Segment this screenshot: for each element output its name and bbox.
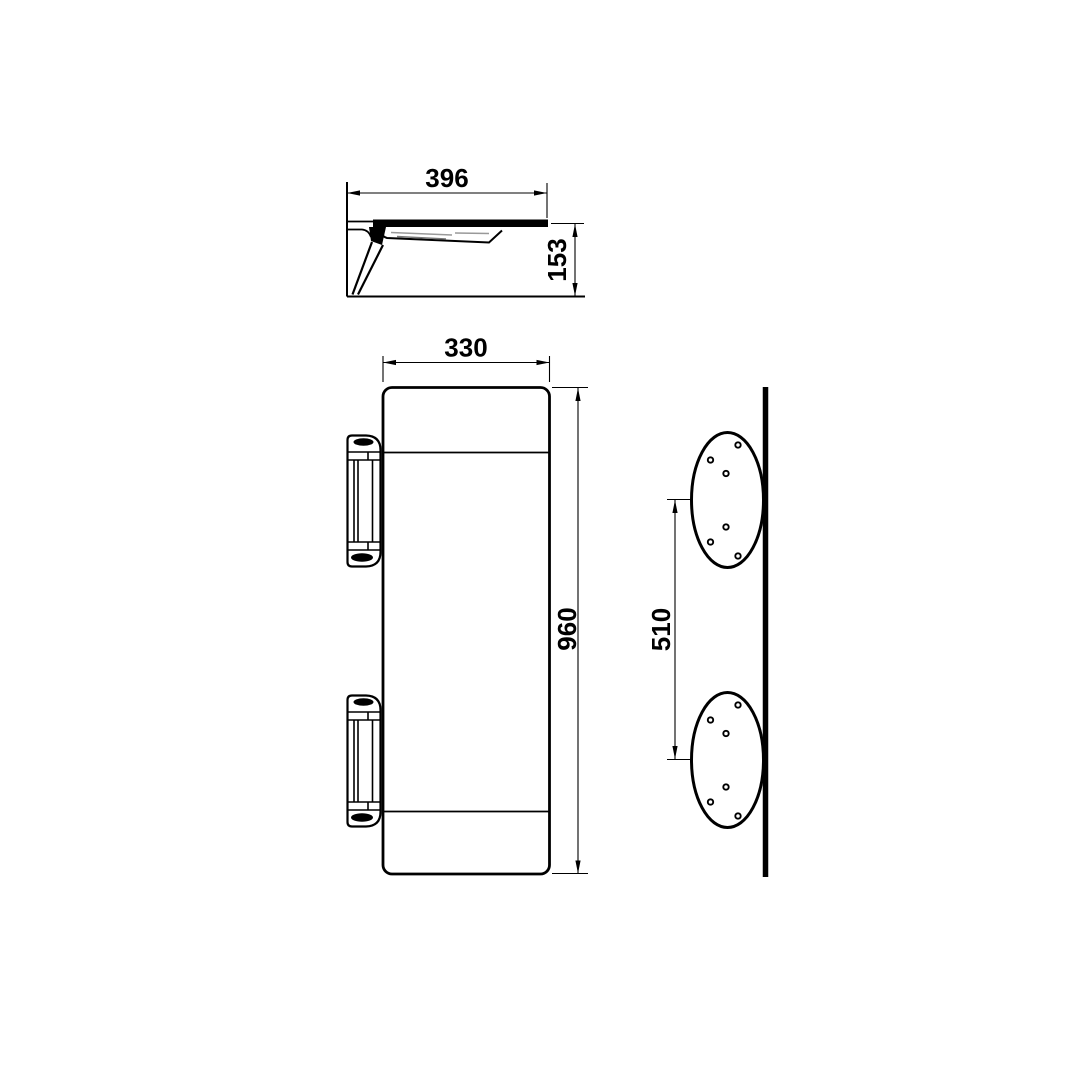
profile-width-label: 396 xyxy=(425,163,468,193)
lower-plate-screw-holes xyxy=(708,702,741,818)
lower-bracket-top-shade xyxy=(354,698,374,706)
front-height-label: 960 xyxy=(552,607,582,650)
lower-mounting-plate xyxy=(692,693,764,828)
upper-bracket-bottom-shade xyxy=(351,553,373,561)
side-view: 510 xyxy=(646,387,766,877)
profile-highlight-line xyxy=(455,233,489,234)
upper-plate-screw-holes xyxy=(708,442,741,558)
front-width-dimension: 330 xyxy=(383,333,550,383)
profile-seat-top-bar xyxy=(373,220,548,228)
profile-width-dimension: 396 xyxy=(347,163,547,218)
plate-spacing-label: 510 xyxy=(646,608,676,651)
upper-mounting-plate xyxy=(692,433,764,568)
front-view: 330 960 xyxy=(348,333,589,875)
lower-bracket-bottom-shade xyxy=(351,813,373,821)
profile-view: 396 153 xyxy=(347,163,585,297)
front-height-dimension: 960 xyxy=(552,388,588,874)
upper-bracket-top-shade xyxy=(354,438,374,446)
front-width-label: 330 xyxy=(444,333,487,363)
seat-panel-outline xyxy=(383,388,550,875)
technical-drawing: 396 153 xyxy=(0,0,1080,1080)
lower-bracket xyxy=(348,696,381,827)
profile-arm-bottom-line xyxy=(347,230,371,238)
plate-spacing-dimension: 510 xyxy=(646,500,691,760)
drawing-canvas: 396 153 xyxy=(0,0,1080,1080)
profile-highlight-line xyxy=(391,233,452,236)
upper-bracket xyxy=(348,436,381,567)
profile-height-label: 153 xyxy=(542,238,572,281)
profile-height-dimension: 153 xyxy=(542,224,584,297)
